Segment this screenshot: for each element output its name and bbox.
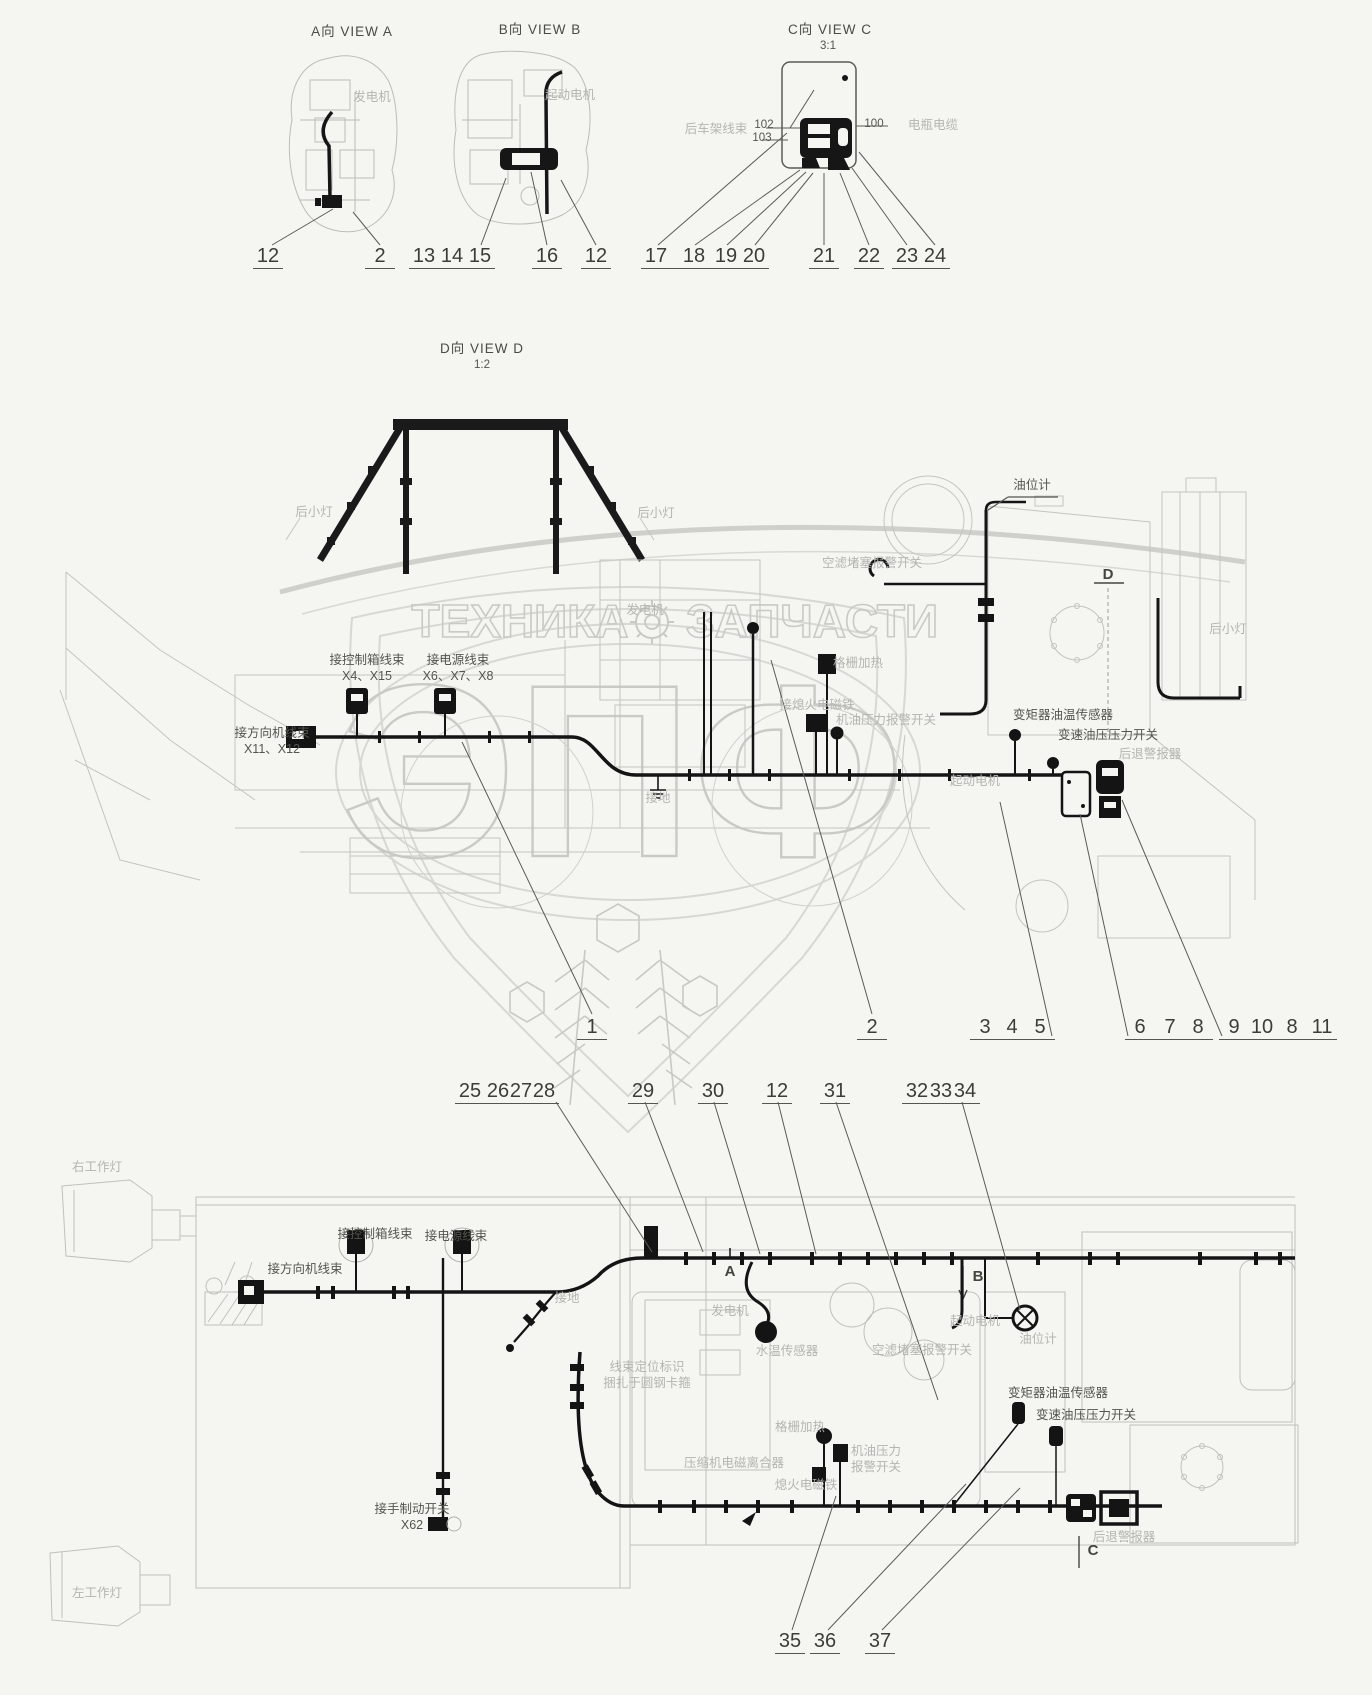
label-trans-oil-pressure-switch-side: 变速油压压力开关 [1058,728,1158,744]
callout-number-12: 12 [257,245,279,268]
callout-underline [641,268,769,269]
callout-underline [1219,1039,1337,1040]
diagram-page: ТЕХНИКА ЗАПЧАСТИ ЭПФ [0,0,1372,1695]
label-tc-oil-temp-sensor-top: 变矩器油温传感器 [1008,1386,1108,1402]
label-starter-top: 起动电机 [950,1314,1000,1330]
label-water-temp-sensor-top: 水温传感器 [756,1344,819,1360]
callout-number-33: 33 [930,1080,952,1103]
label-oil-level-gauge-side: 油位计 [1013,478,1051,494]
callout-number-2: 2 [374,245,385,268]
label-rear-frame-harness: 后车架线束 [685,122,748,138]
callout-underline [1125,1039,1213,1040]
callout-number-8: 8 [1286,1016,1297,1039]
callout-number-22: 22 [858,245,880,268]
view-b-drawing [454,51,590,224]
label-rear-small-lamp-right: 后小灯 [637,506,675,522]
callout-underline [409,268,495,269]
callout-underline [581,268,611,269]
label-103: 103 [752,131,771,145]
callout-number-13: 13 [413,245,435,268]
callout-number-27: 27 [510,1080,532,1103]
callout-underline [854,268,884,269]
view-b-title: B向 VIEW B [499,22,582,39]
label-to-shutoff-solenoid-side: 接熄火电磁铁 [779,698,854,714]
callout-number-18: 18 [683,245,705,268]
callout-number-23: 23 [896,245,918,268]
callout-underline [970,1039,1055,1040]
view-d-drawing [280,419,1245,614]
callout-number-29: 29 [632,1080,654,1103]
callout-underline [810,1653,840,1654]
callout-number-12: 12 [766,1080,788,1103]
callout-number-28: 28 [533,1080,555,1103]
callout-number-14: 14 [441,245,463,268]
label-rear-small-lamp-side: 后小灯 [1209,622,1247,638]
callout-number-11: 11 [1312,1016,1333,1039]
view-a-cable [315,112,342,208]
label-right-work-lamp: 右工作灯 [72,1160,122,1176]
label-starter-view-b: 起动电机 [545,88,595,104]
label-left-work-lamp: 左工作灯 [72,1586,122,1602]
callout-underline [809,268,839,269]
callout-underline [532,268,562,269]
label-100: 100 [864,117,883,131]
callout-number-10: 10 [1251,1016,1273,1039]
callout-underline [892,268,950,269]
callout-underline [365,268,395,269]
label-compressor-clutch-top: 压缩机电磁离合器 [684,1456,784,1472]
callout-underline [455,1103,559,1104]
label-tc-oil-temp-sensor-side: 变矩器油温传感器 [1013,708,1113,724]
top-view-machine [50,1180,1298,1626]
callout-number-1: 1 [586,1016,597,1039]
callout-number-34: 34 [954,1080,976,1103]
label-shutoff-solenoid-top: 熄火电磁铁 [775,1478,838,1494]
watermark-text: ТЕХНИКА ЗАПЧАСТИ ЭПФ [341,595,938,909]
view-c-drawing [762,62,888,170]
callout-underline [762,1103,792,1104]
label-air-filter-clog-alarm-switch-side: 空滤堵塞报警开关 [822,556,922,572]
label-generator-side: 发电机 [626,603,664,619]
label-reverse-alarm-top: 后退警报器 [1093,1530,1156,1546]
label-oil-pressure-alarm-switch-side: 机油压力报警开关 [836,713,936,729]
label-to-handbrake-switch: 接手制动开关X62 [374,1502,449,1533]
section-marker-d: D [1103,566,1114,583]
label-starter-side: 起动电机 [950,774,1000,790]
callout-underline [775,1653,805,1654]
callout-number-30: 30 [702,1080,724,1103]
callout-number-32: 32 [906,1080,928,1103]
label-trans-oil-pressure-switch-top: 变速油压压力开关 [1036,1408,1136,1424]
callout-underline [577,1039,607,1040]
callout-number-5: 5 [1034,1016,1045,1039]
view-a-title: A向 VIEW A [311,24,393,41]
section-marker-a: A [725,1263,736,1280]
callout-number-4: 4 [1006,1016,1017,1039]
view-c-scale: 3:1 [820,39,836,53]
label-to-steering-harness-side: 接方向机线束X11、X12 [234,726,309,757]
callout-number-15: 15 [469,245,491,268]
section-marker-b: B [973,1268,984,1285]
label-ground-side: 接地 [645,791,670,807]
callout-underline [698,1103,728,1104]
callout-underline [820,1103,850,1104]
callout-number-6: 6 [1134,1016,1145,1039]
label-reverse-alarm-side: 后退警报器 [1119,747,1182,763]
callout-underline [857,1039,887,1040]
view-d-title: D向 VIEW D [440,341,524,358]
label-grid-heater-side: 格栅加热 [833,656,883,672]
callout-number-36: 36 [814,1630,836,1653]
label-harness-position-mark: 线束定位标识捆扎于圆钢卡箍 [603,1360,691,1391]
callout-underline [628,1103,658,1104]
label-generator-view-a: 发电机 [353,90,391,106]
label-to-control-box-harness-top: 接控制箱线束 [337,1227,412,1243]
label-to-power-harness-top: 接电源线束 [425,1229,488,1245]
view-c-title: C向 VIEW C [788,22,872,39]
label-ground-top: 接地 [554,1291,579,1307]
callout-number-25: 25 [459,1080,481,1103]
callout-number-35: 35 [779,1630,801,1653]
callout-number-9: 9 [1228,1016,1239,1039]
callout-number-8: 8 [1192,1016,1203,1039]
label-oil-level-gauge-top: 油位计 [1019,1332,1057,1348]
callout-number-7: 7 [1164,1016,1175,1039]
callout-number-37: 37 [869,1630,891,1653]
callout-number-21: 21 [813,245,835,268]
view-d-scale: 1:2 [474,358,490,372]
callout-number-3: 3 [979,1016,990,1039]
label-grid-heater-top: 格栅加热 [775,1420,825,1436]
callout-number-17: 17 [645,245,667,268]
callout-number-24: 24 [924,245,946,268]
label-generator-top: 发电机 [711,1304,749,1320]
label-air-filter-clog-alarm-switch-top: 空滤堵塞报警开关 [872,1343,972,1359]
callout-underline [865,1653,895,1654]
label-to-power-harness-side: 接电源线束X6、X7、X8 [423,653,494,684]
callout-number-26: 26 [487,1080,509,1103]
callout-number-20: 20 [743,245,765,268]
label-to-steering-harness-top: 接方向机线束 [267,1262,342,1278]
callout-number-16: 16 [536,245,558,268]
callout-underline [253,268,283,269]
label-rear-small-lamp-left: 后小灯 [295,505,333,521]
label-battery-cable: 电瓶电缆 [908,118,958,134]
callout-number-31: 31 [824,1080,846,1103]
callout-number-19: 19 [715,245,737,268]
callout-number-12: 12 [585,245,607,268]
callout-number-2: 2 [866,1016,877,1039]
callout-underline [902,1103,980,1104]
label-to-control-box-harness-side: 接控制箱线束X4、X15 [329,653,404,684]
label-oil-pressure-alarm-switch-top: 机油压力报警开关 [851,1444,901,1475]
view-a-drawing [289,56,397,232]
section-marker-c: C [1088,1542,1099,1559]
